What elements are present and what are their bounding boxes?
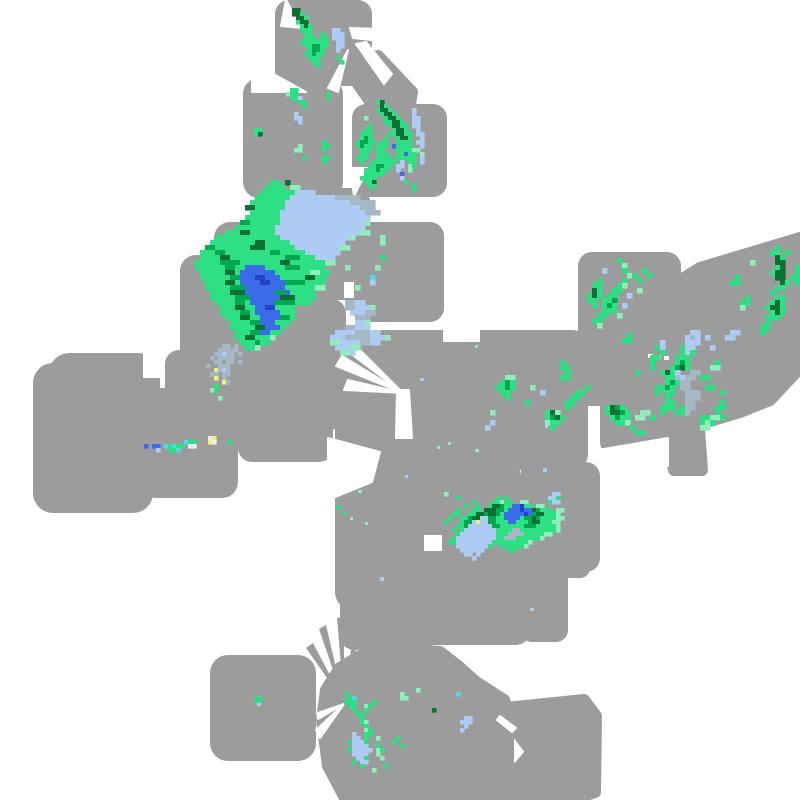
echo-cell: [468, 520, 473, 525]
echo-cell: [780, 295, 786, 301]
echo-cell: [235, 325, 241, 331]
echo-cell: [245, 255, 251, 261]
echo-cell: [520, 524, 525, 529]
echo-cell: [545, 410, 551, 416]
echo-cell: [464, 548, 469, 553]
echo-cell: [355, 325, 361, 331]
echo-cell: [575, 395, 581, 401]
echo-cell: [290, 240, 296, 246]
echo-cell: [484, 512, 489, 517]
echo-cell: [560, 365, 566, 371]
echo-cell: [235, 225, 241, 231]
echo-cell: [294, 148, 299, 153]
echo-cell: [360, 712, 365, 717]
echo-cell: [364, 156, 369, 161]
echo-cell: [210, 265, 216, 271]
echo-cell: [260, 290, 266, 296]
echo-cell: [255, 320, 261, 326]
echo-cell: [680, 345, 686, 351]
echo-cell: [635, 415, 641, 421]
echo-cell: [504, 524, 509, 529]
echo-cell: [700, 415, 706, 421]
echo-cell: [460, 540, 465, 545]
echo-cell: [310, 260, 316, 266]
echo-cell: [296, 8, 301, 13]
echo-cell: [280, 290, 286, 296]
coverage-gap: [443, 320, 480, 342]
echo-cell: [348, 740, 353, 745]
echo-cell: [230, 320, 236, 326]
echo-cell: [368, 176, 373, 181]
echo-cell: [376, 152, 381, 157]
echo-cell: [290, 290, 296, 296]
echo-cell: [280, 220, 286, 226]
echo-cell: [705, 335, 711, 341]
echo-speck: [405, 475, 408, 478]
echo-cell: [308, 24, 313, 29]
echo-cell: [300, 195, 306, 201]
echo-cell: [627, 273, 633, 279]
echo-cell: [375, 210, 381, 216]
echo-cell: [370, 305, 376, 311]
echo-cell: [380, 164, 385, 169]
echo-cell: [484, 516, 489, 521]
echo-cell: [156, 448, 161, 453]
echo-cell: [290, 235, 296, 241]
echo-cell: [512, 540, 517, 545]
echo-cell: [250, 220, 256, 226]
echo-cell: [468, 544, 473, 549]
echo-cell: [512, 532, 517, 537]
echo-cell: [270, 230, 276, 236]
echo-cell: [218, 360, 223, 365]
echo-cell: [340, 200, 346, 206]
echo-cell: [316, 48, 321, 53]
echo-cell: [375, 340, 381, 346]
echo-cell: [225, 255, 231, 261]
echo-cell: [298, 144, 303, 149]
echo-cell: [235, 235, 241, 241]
echo-cell: [464, 520, 469, 525]
echo-cell: [476, 536, 481, 541]
echo-cell: [780, 310, 786, 316]
echo-cell: [512, 544, 517, 549]
echo-cell: [380, 100, 385, 105]
echo-cell: [340, 215, 346, 221]
echo-cell: [508, 524, 513, 529]
echo-cell: [368, 128, 373, 133]
echo-cell: [504, 512, 509, 517]
echo-cell: [225, 300, 231, 306]
echo-cell: [360, 310, 366, 316]
echo-cell: [665, 370, 671, 376]
echo-cell: [320, 240, 326, 246]
echo-cell: [380, 108, 385, 113]
echo-cell: [260, 260, 266, 266]
echo-cell: [250, 315, 256, 321]
echo-cell: [270, 200, 276, 206]
echo-cell: [597, 278, 603, 284]
echo-cell: [360, 340, 366, 346]
echo-cell: [265, 230, 271, 236]
echo-cell: [376, 752, 381, 757]
echo-cell: [192, 444, 197, 449]
echo-cell: [300, 225, 306, 231]
radar-mosaic-map[interactable]: [0, 0, 800, 800]
echo-cell: [552, 528, 557, 533]
echo-cell: [235, 270, 241, 276]
echo-cell: [280, 280, 286, 286]
echo-cell: [617, 258, 623, 264]
echo-cell: [335, 240, 341, 246]
echo-cell: [225, 280, 231, 286]
echo-cell: [500, 544, 505, 549]
echo-cell: [245, 240, 251, 246]
echo-cell: [222, 356, 227, 361]
echo-cell: [504, 508, 509, 513]
echo-cell: [234, 348, 239, 353]
echo-cell: [532, 516, 537, 521]
echo-cell: [308, 52, 313, 57]
echo-cell: [396, 116, 401, 121]
echo-cell: [290, 315, 296, 321]
echo-cell: [565, 405, 571, 411]
echo-cell: [597, 323, 603, 329]
echo-cell: [340, 220, 346, 226]
echo-cell: [705, 375, 711, 381]
echo-cell: [355, 310, 361, 316]
echo-cell: [780, 265, 786, 271]
echo-cell: [528, 524, 533, 529]
echo-cell: [365, 230, 371, 236]
echo-cell: [548, 524, 553, 529]
echo-cell: [308, 32, 313, 37]
echo-cell: [330, 210, 336, 216]
echo-cell: [335, 335, 341, 341]
echo-cell: [360, 132, 365, 137]
echo-cell: [270, 180, 276, 186]
echo-cell: [548, 528, 553, 533]
echo-cell: [508, 548, 513, 553]
echo-cell: [245, 265, 251, 271]
echo-cell: [280, 240, 286, 246]
echo-cell: [350, 305, 356, 311]
echo-cell: [695, 330, 701, 336]
echo-cell: [336, 40, 341, 45]
echo-cell: [250, 275, 256, 281]
echo-cell: [322, 160, 327, 165]
echo-cell: [245, 220, 251, 226]
echo-cell: [640, 410, 646, 416]
echo-cell: [496, 536, 501, 541]
echo-cell: [464, 724, 469, 729]
echo-cell: [404, 124, 409, 129]
echo-cell: [500, 532, 505, 537]
echo-speck: [380, 577, 384, 581]
echo-cell: [345, 210, 351, 216]
echo-cell: [240, 270, 246, 276]
echo-cell: [364, 760, 369, 765]
echo-cell: [320, 205, 326, 211]
echo-cell: [285, 220, 291, 226]
echo-cell: [250, 205, 256, 211]
echo-cell: [384, 168, 389, 173]
echo-cell: [500, 512, 505, 517]
echo-cell: [496, 508, 501, 513]
echo-cell: [795, 265, 800, 271]
echo-cell: [392, 112, 397, 117]
echo-cell: [300, 190, 306, 196]
echo-cell: [210, 280, 216, 286]
echo-cell: [290, 260, 296, 266]
echo-cell: [275, 180, 281, 186]
echo-cell: [612, 298, 618, 304]
echo-cell: [305, 265, 311, 271]
echo-cell: [205, 285, 211, 291]
echo-cell: [408, 152, 413, 157]
echo-cell: [294, 92, 299, 97]
echo-cell: [315, 205, 321, 211]
echo-cell: [505, 385, 511, 391]
echo-cell: [285, 215, 291, 221]
echo-cell: [265, 205, 271, 211]
echo-cell: [695, 370, 701, 376]
echo-cell: [770, 290, 776, 296]
echo-cell: [345, 215, 351, 221]
echo-cell: [544, 512, 549, 517]
echo-cell: [468, 516, 473, 521]
echo-cell: [685, 375, 691, 381]
echo-cell: [520, 500, 525, 505]
echo-cell: [330, 205, 336, 211]
echo-cell: [180, 444, 185, 449]
echo-cell: [670, 375, 676, 381]
echo-cell: [245, 290, 251, 296]
echo-cell: [295, 205, 301, 211]
echo-cell: [376, 736, 381, 741]
echo-cell: [290, 220, 296, 226]
echo-cell: [335, 220, 341, 226]
echo-cell: [245, 325, 251, 331]
echo-cell: [240, 320, 246, 326]
echo-cell: [340, 36, 345, 41]
echo-cell: [620, 420, 626, 426]
echo-cell: [456, 544, 461, 549]
echo-cell: [255, 305, 261, 311]
echo-cell: [260, 335, 266, 341]
echo-cell: [364, 732, 369, 737]
echo-cell: [254, 128, 259, 133]
echo-cell: [516, 516, 521, 521]
echo-cell: [255, 235, 261, 241]
echo-cell: [285, 290, 291, 296]
echo-cell: [300, 28, 305, 33]
echo-cell: [255, 325, 261, 331]
echo-cell: [260, 285, 266, 291]
echo-cell: [356, 140, 361, 145]
echo-cell: [360, 764, 365, 769]
echo-cell: [250, 280, 256, 286]
echo-cell: [536, 520, 541, 525]
echo-cell: [597, 318, 603, 324]
echo-cell: [400, 152, 405, 157]
echo-cell: [310, 270, 316, 276]
echo-cell: [320, 52, 325, 57]
echo-cell: [460, 528, 465, 533]
echo-cell: [364, 140, 369, 145]
echo-cell: [315, 200, 321, 206]
echo-cell: [245, 330, 251, 336]
echo-cell: [500, 390, 506, 396]
echo-cell: [555, 420, 561, 426]
echo-cell: [218, 352, 223, 357]
echo-cell: [660, 350, 666, 356]
echo-cell: [310, 250, 316, 256]
echo-cell: [290, 285, 296, 291]
echo-cell: [710, 345, 716, 351]
echo-cell: [452, 528, 457, 533]
echo-cell: [508, 536, 513, 541]
echo-cell: [315, 260, 321, 266]
echo-cell: [492, 536, 497, 541]
echo-cell: [350, 230, 356, 236]
echo-cell: [488, 516, 493, 521]
echo-cell: [330, 250, 336, 256]
echo-cell: [270, 280, 276, 286]
echo-cell: [250, 345, 256, 351]
echo-cell: [637, 288, 643, 294]
echo-cell: [265, 315, 271, 321]
echo-cell: [320, 245, 326, 251]
echo-cell: [472, 512, 477, 517]
echo-cell: [508, 528, 513, 533]
echo-cell: [504, 520, 509, 525]
echo-cell: [528, 508, 533, 513]
echo-cell: [265, 335, 271, 341]
echo-cell: [484, 528, 489, 533]
echo-cell: [476, 508, 481, 513]
echo-cell: [504, 528, 509, 533]
echo-cell: [400, 136, 405, 141]
echo-cell: [265, 305, 271, 311]
echo-cell: [488, 528, 493, 533]
echo-cell: [368, 140, 373, 145]
echo-cell: [392, 740, 397, 745]
echo-cell: [680, 405, 686, 411]
echo-cell: [444, 492, 449, 497]
echo-cell: [356, 144, 361, 149]
echo-cell: [350, 325, 356, 331]
echo-cell: [650, 360, 656, 366]
echo-cell: [320, 220, 326, 226]
echo-cell: [294, 116, 299, 121]
echo-cell: [592, 283, 598, 289]
echo-cell: [500, 385, 506, 391]
echo-cell: [364, 180, 369, 185]
echo-cell: [305, 245, 311, 251]
echo-cell: [617, 313, 623, 319]
echo-cell: [205, 270, 211, 276]
echo-cell: [416, 124, 421, 129]
echo-cell: [340, 60, 345, 65]
echo-cell: [320, 44, 325, 49]
echo-cell: [376, 144, 381, 149]
echo-cell: [156, 444, 161, 449]
echo-cell: [392, 144, 397, 149]
echo-cell: [775, 265, 781, 271]
echo-cell: [230, 360, 235, 365]
echo-cell: [305, 240, 311, 246]
echo-cell: [188, 444, 193, 449]
echo-cell: [350, 215, 356, 221]
echo-cell: [617, 288, 623, 294]
echo-cell: [310, 205, 316, 211]
echo-cell: [265, 310, 271, 316]
echo-cell: [735, 330, 741, 336]
echo-cell: [324, 44, 329, 49]
echo-cell: [555, 410, 561, 416]
echo-cell: [356, 712, 361, 717]
echo-cell: [520, 504, 525, 509]
echo-cell: [300, 40, 305, 45]
echo-cell: [230, 290, 236, 296]
echo-cell: [265, 330, 271, 336]
echo-cell: [335, 215, 341, 221]
echo-cell: [325, 255, 331, 261]
echo-cell: [472, 516, 477, 521]
echo-cell: [235, 290, 241, 296]
echo-cell: [295, 285, 301, 291]
echo-cell: [308, 56, 313, 61]
echo-cell: [280, 260, 286, 266]
echo-cell: [376, 172, 381, 177]
echo-cell: [340, 240, 346, 246]
echo-cell: [214, 360, 219, 365]
echo-cell: [570, 400, 576, 406]
echo-cell: [665, 390, 671, 396]
echo-cell: [548, 508, 553, 513]
echo-cell: [240, 260, 246, 266]
echo-cell: [270, 285, 276, 291]
echo-cell: [384, 160, 389, 165]
echo-cell: [280, 305, 286, 311]
echo-cell: [320, 250, 326, 256]
echo-cell: [602, 308, 608, 314]
echo-cell: [320, 215, 326, 221]
echo-cell: [380, 104, 385, 109]
echo-cell: [304, 28, 309, 33]
echo-cell: [326, 156, 331, 161]
echo-cell: [320, 270, 326, 276]
echo-cell: [298, 96, 303, 101]
echo-cell: [504, 532, 509, 537]
echo-cell: [225, 235, 231, 241]
echo-cell: [270, 205, 276, 211]
echo-cell: [416, 148, 421, 153]
echo-cell: [220, 265, 226, 271]
echo-cell: [675, 370, 681, 376]
echo-cell: [235, 330, 241, 336]
echo-cell: [350, 200, 356, 206]
echo-cell: [710, 365, 716, 371]
echo-cell: [536, 516, 541, 521]
echo-cell: [340, 205, 346, 211]
echo-cell: [230, 230, 236, 236]
echo-cell: [544, 516, 549, 521]
echo-cell: [245, 345, 251, 351]
echo-cell: [320, 195, 326, 201]
echo-cell: [480, 536, 485, 541]
